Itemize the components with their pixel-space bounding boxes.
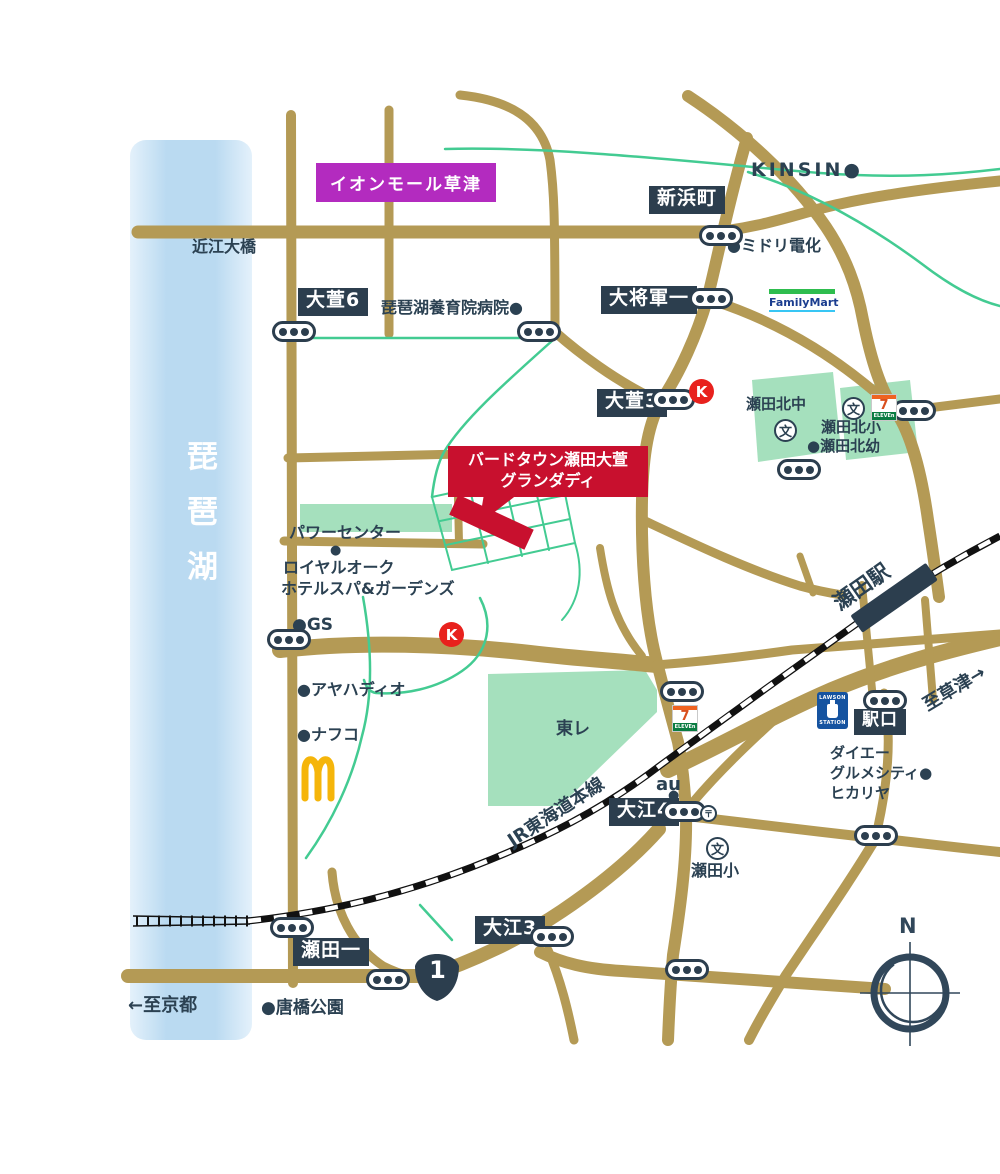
badge-seta1: 瀬田一 xyxy=(293,938,369,966)
school-mark-icon: 文 xyxy=(842,397,865,420)
label-gourmet-city: グルメシティ● xyxy=(830,765,932,782)
access-map: 琵琶湖 イオンモール草津 バードタウン瀬田大萱 グランダディ 新浜町 大萱6 大… xyxy=(0,0,1000,1174)
label-power-center: パワーセンター xyxy=(289,524,401,542)
mcdonalds-icon xyxy=(305,760,331,798)
badge-ekiguchi: 駅口 xyxy=(854,709,906,735)
label-seta-elementary: 瀬田小 xyxy=(691,862,739,880)
label-hotel-dot: ● xyxy=(330,544,341,558)
seven-eleven-seven: 7 xyxy=(872,399,896,412)
label-to-kyoto: ←至京都 xyxy=(128,996,197,1016)
traffic-signal-icon xyxy=(517,321,561,342)
label-setakita-kindergarten: ●瀬田北幼 xyxy=(807,438,880,455)
badge-daishogun: 大将軍一 xyxy=(601,286,697,314)
label-omi-ohashi: 近江大橋 xyxy=(192,238,256,256)
label-karahashi-park: ●唐橋公園 xyxy=(261,999,344,1018)
property-callout-line2: グランダディ xyxy=(450,471,646,492)
compass-north-label: N xyxy=(899,914,917,938)
route-1-number: 1 xyxy=(424,956,451,984)
label-setakita-elementary: 瀬田北小 xyxy=(821,419,881,436)
traffic-signal-icon xyxy=(665,959,709,980)
family-mart-green-bar xyxy=(769,289,835,294)
label-nafco: ●ナフコ xyxy=(297,726,359,744)
label-hikariya: ヒカリヤ xyxy=(830,785,890,802)
badge-ogaya6: 大萱6 xyxy=(298,288,368,316)
seven-eleven-seven: 7 xyxy=(673,710,697,723)
label-daiei: ダイエー xyxy=(830,745,890,762)
traffic-signal-icon xyxy=(530,926,574,947)
family-mart-icon: FamilyMart xyxy=(769,289,835,312)
traffic-signal-icon xyxy=(660,681,704,702)
seven-eleven-icon: 7 ELEVEn xyxy=(871,394,897,421)
traffic-signal-icon xyxy=(270,917,314,938)
traffic-signal-icon xyxy=(892,400,936,421)
traffic-signal-icon xyxy=(267,629,311,650)
lawson-station-wordmark: STATION xyxy=(819,720,846,726)
label-hospital: 琵琶湖養育院病院● xyxy=(381,299,523,317)
circle-k-icon: K xyxy=(689,379,714,404)
seven-eleven-wordmark: ELEVEn xyxy=(673,723,697,731)
label-kinsin: KINSIN● xyxy=(751,160,863,181)
lawson-station-icon: LAWSON STATION xyxy=(817,692,848,729)
seven-eleven-icon: 7 ELEVEn xyxy=(672,705,698,732)
aeon-mall-label: イオンモール草津 xyxy=(316,163,496,202)
traffic-signal-icon xyxy=(777,459,821,480)
school-mark-icon: 文 xyxy=(774,419,797,442)
lake-biwa-label: 琵琶湖 xyxy=(177,440,222,605)
traffic-signal-icon xyxy=(699,225,743,246)
circle-k-icon: K xyxy=(439,622,464,647)
traffic-signal-icon xyxy=(863,690,907,711)
label-toray: 東レ xyxy=(556,720,590,739)
property-callout: バードタウン瀬田大萱 グランダディ xyxy=(448,446,648,497)
label-setakita-junior-high: 瀬田北中 xyxy=(746,396,806,413)
lawson-milk-bottle xyxy=(827,704,838,718)
label-royal-oak-2: ホテルスパ&ガーデンズ xyxy=(281,580,455,598)
traffic-signal-icon xyxy=(689,288,733,309)
school-mark-icon: 文 xyxy=(706,837,729,860)
label-ayaha-dio: ●アヤハディオ xyxy=(297,681,406,699)
family-mart-wordmark: FamilyMart xyxy=(769,296,835,312)
traffic-signal-icon xyxy=(854,825,898,846)
traffic-signal-icon xyxy=(366,969,410,990)
compass-icon xyxy=(860,942,960,1046)
seven-eleven-wordmark: ELEVEn xyxy=(872,412,896,420)
badge-shinhama: 新浜町 xyxy=(649,186,725,214)
label-royal-oak-1: ロイヤルオーク xyxy=(283,559,395,577)
property-callout-line1: バードタウン瀬田大萱 xyxy=(450,450,646,471)
post-office-icon: 〒 xyxy=(700,805,717,822)
traffic-signal-icon xyxy=(272,321,316,342)
